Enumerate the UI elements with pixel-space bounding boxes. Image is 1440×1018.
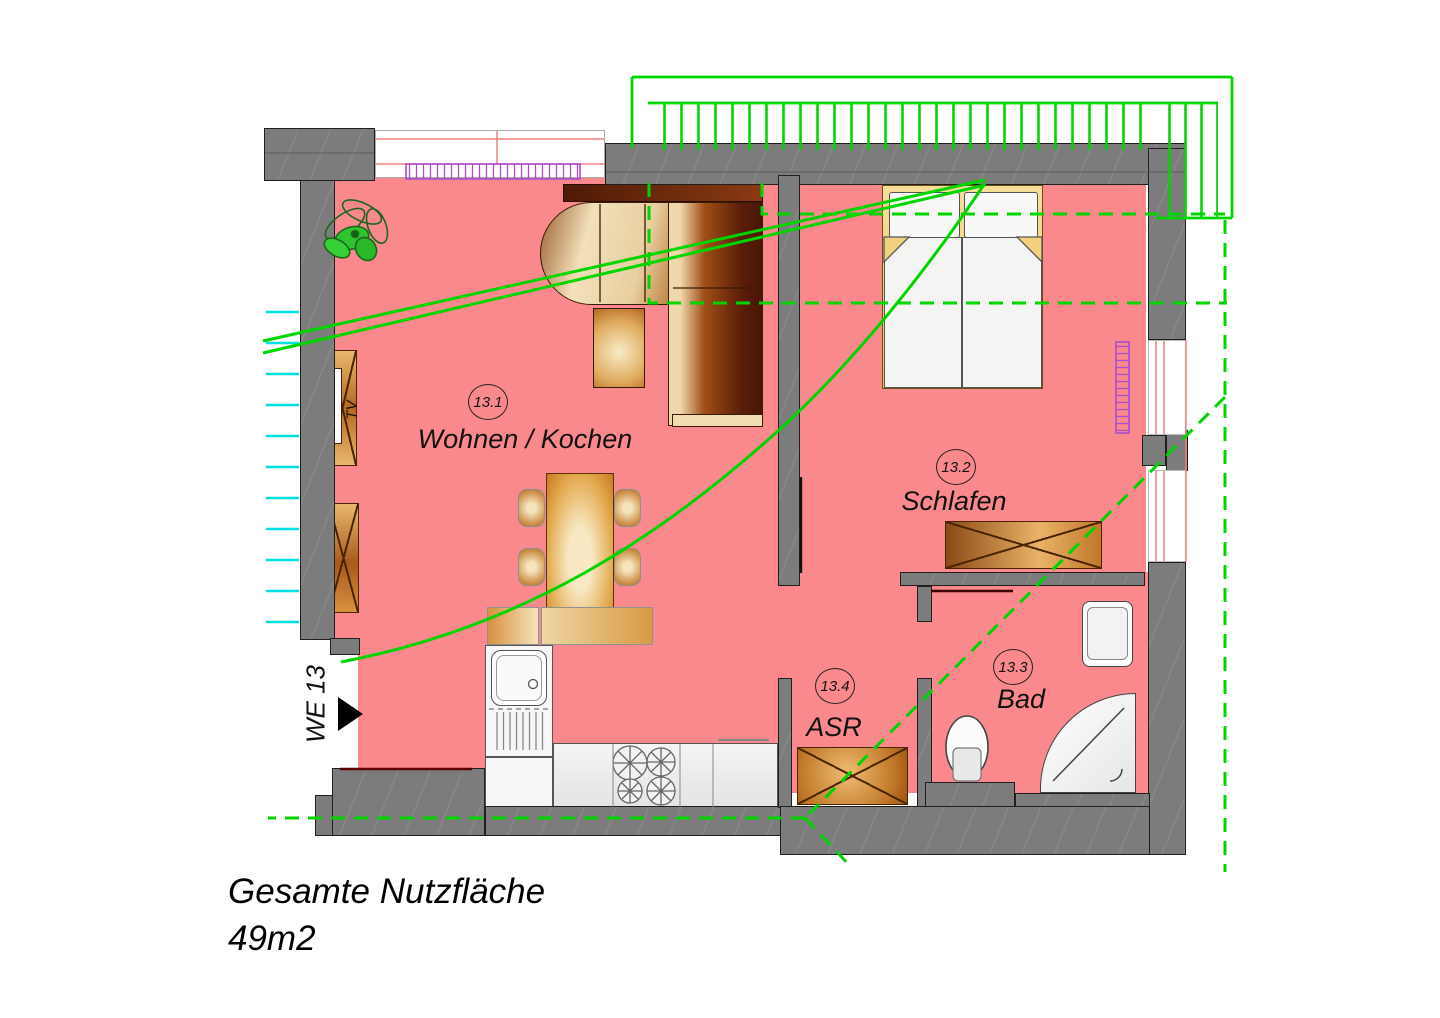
sofa-seat [540, 202, 669, 305]
room-number-text: 13.4 [820, 678, 849, 695]
caption-line1: Gesamte Nutzfläche [228, 868, 545, 915]
room-number-bath: 13.3 [993, 649, 1033, 685]
wall-bath-jamb [917, 586, 932, 622]
wall-bottom-left [332, 768, 485, 836]
wall-entrance-stub [330, 638, 360, 655]
wall-partition-living-bedroom [778, 175, 800, 586]
room-name-living: Wohnen / Kochen [418, 424, 633, 455]
room-number-text: 13.1 [473, 394, 502, 411]
dining-table [546, 473, 614, 629]
sofa-foot-strip [672, 414, 763, 427]
washbasin-inner [1087, 607, 1128, 660]
wall-right-bottom [1148, 562, 1186, 855]
wall-bottom-left-step [315, 795, 333, 836]
sofa-backrest [563, 184, 763, 202]
dining-chair [518, 489, 545, 527]
kitchen-counter-wood-left [487, 607, 539, 645]
wall-left [300, 180, 335, 640]
kitchen-counter-wood-right [541, 607, 653, 645]
room-number-asr: 13.4 [815, 668, 855, 704]
wall-right-pillar-inner [1142, 435, 1166, 466]
dining-chair [518, 548, 545, 586]
caption-line2: 49m2 [228, 915, 545, 962]
sofa-chaise [668, 202, 763, 426]
wall-bedroom-bath [900, 572, 1145, 586]
asr-storage-box [797, 747, 908, 805]
wall-bottom-kitchen [485, 806, 781, 836]
window-right-upper [1148, 340, 1186, 435]
room-name-bath: Bad [997, 684, 1045, 715]
room-number-text: 13.2 [941, 459, 970, 476]
wall-top [605, 143, 1186, 185]
bed-mattress-right [962, 237, 1042, 388]
window-right-lower [1148, 470, 1186, 562]
room-number-bedroom: 13.2 [936, 449, 976, 485]
tv-label: TV [344, 400, 361, 419]
dining-chair [614, 548, 641, 586]
bed-pillow-left [889, 192, 960, 238]
floor-plan: 13.1 Wohnen / Kochen 13.2 Schlafen 13.3 … [0, 0, 1440, 1018]
bed-mattress-left [884, 237, 962, 388]
wall-asr-left [778, 678, 792, 808]
bed-pillow-right [964, 192, 1038, 238]
sink-basin-inner [496, 655, 542, 701]
dining-chair [614, 489, 641, 527]
sideboard [945, 521, 1102, 569]
window-top [375, 130, 605, 178]
cyan-ticks [266, 291, 299, 641]
room-name-asr: ASR [806, 712, 862, 743]
room-number-living: 13.1 [468, 384, 508, 420]
wall-top-left [264, 128, 375, 181]
kitchen-base-cabinet [485, 757, 553, 808]
room-name-bedroom: Schlafen [901, 486, 1006, 517]
coffee-table [593, 308, 645, 388]
wall-bottom-right [780, 806, 1150, 855]
kitchen-counter-stove [553, 743, 778, 808]
entrance-label: WE 13 [301, 665, 332, 743]
caption: Gesamte Nutzfläche 49m2 [228, 868, 545, 963]
wall-right-top [1148, 148, 1186, 340]
wall-right-pillar-outer [1166, 430, 1188, 471]
room-number-text: 13.3 [998, 659, 1027, 676]
